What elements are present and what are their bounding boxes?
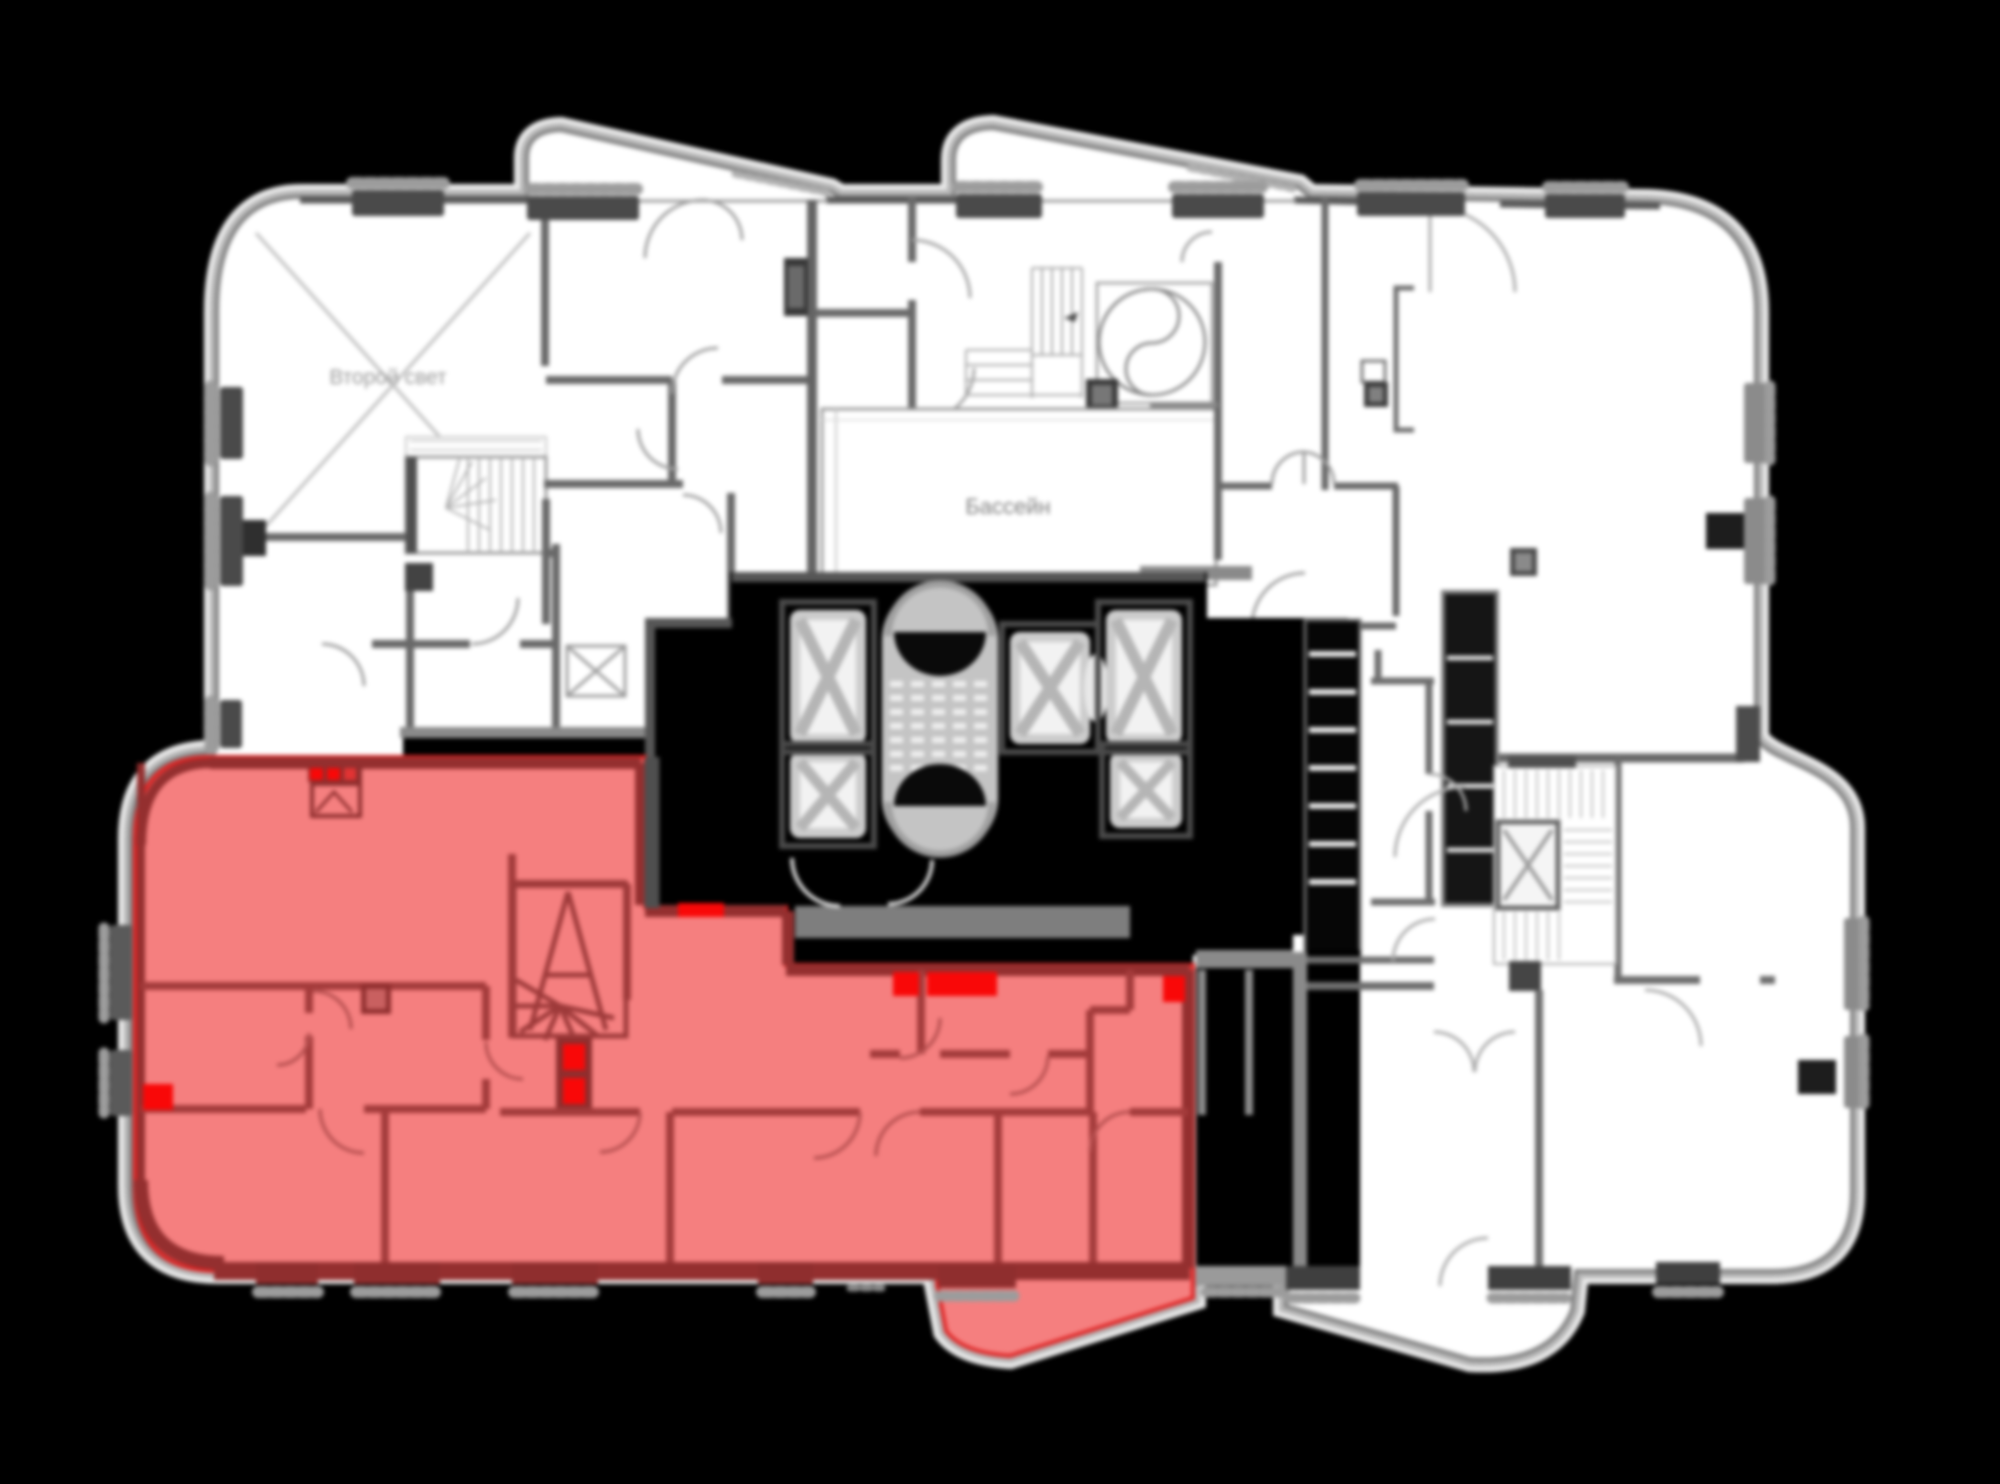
svg-text:Бассейн: Бассейн [965,494,1050,519]
svg-text:Второй свет: Второй свет [329,366,447,389]
